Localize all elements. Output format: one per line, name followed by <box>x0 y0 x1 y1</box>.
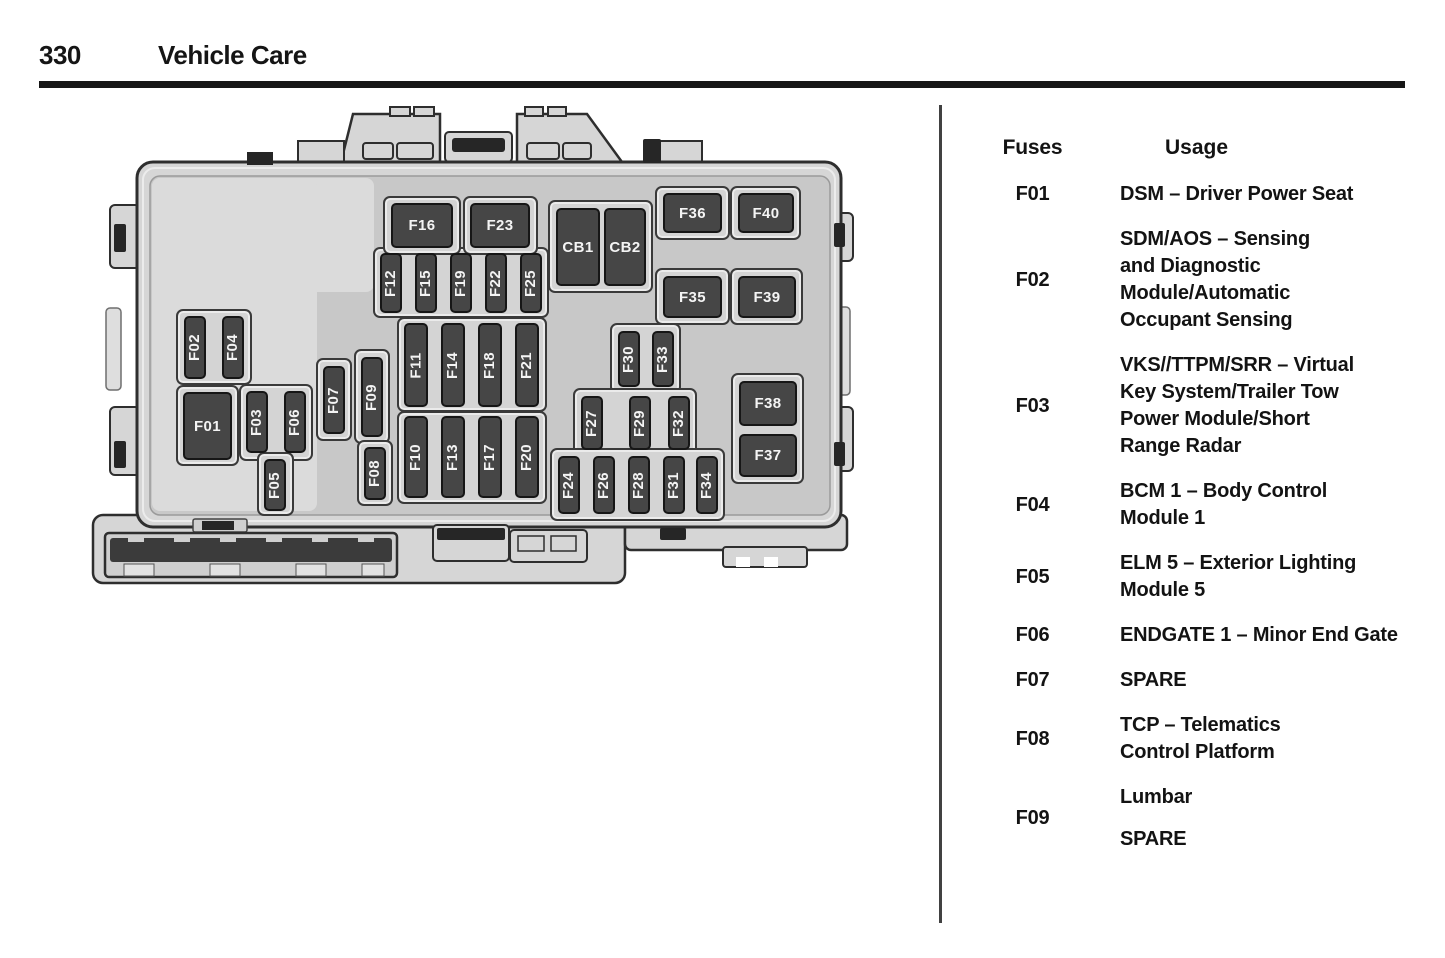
fuse-F26: F26 <box>593 456 615 514</box>
fuse-F32: F32 <box>668 396 690 450</box>
fuse-F35: F35 <box>663 276 722 318</box>
column-divider <box>939 105 942 923</box>
fuse-label: F34 <box>699 471 716 498</box>
usage-line <box>1120 811 1437 826</box>
fuse-F12: F12 <box>380 253 402 313</box>
usage-line: Power Module/Short <box>1120 406 1437 433</box>
fuse-label: F36 <box>679 205 706 222</box>
fuse-id: F07 <box>945 667 1120 694</box>
fuse-label: F09 <box>364 383 381 410</box>
fuse-F27: F27 <box>581 396 603 450</box>
fuse-F33: F33 <box>652 331 674 387</box>
fuse-label: F35 <box>679 289 706 306</box>
fuse-id: F04 <box>945 478 1120 532</box>
fuse-F24: F24 <box>558 456 580 514</box>
fuse-F36: F36 <box>663 193 722 233</box>
table-row: F06ENDGATE 1 – Minor End Gate <box>945 622 1437 649</box>
usage-line: and Diagnostic <box>1120 253 1437 280</box>
usage-line: Key System/Trailer Tow <box>1120 379 1437 406</box>
page-section-title: Vehicle Care <box>158 40 307 71</box>
fuse-F01: F01 <box>183 392 232 460</box>
fuse-F17: F17 <box>478 416 502 498</box>
fuse-F03: F03 <box>246 391 268 453</box>
usage-line: ENDGATE 1 – Minor End Gate <box>1120 622 1437 649</box>
fuse-label: F27 <box>584 409 601 436</box>
table-row: F05ELM 5 – Exterior LightingModule 5 <box>945 550 1437 604</box>
usage-line: Lumbar <box>1120 784 1437 811</box>
fuse-F29: F29 <box>629 396 651 450</box>
usage-line: DSM – Driver Power Seat <box>1120 181 1437 208</box>
fuse-F34: F34 <box>696 456 718 514</box>
fuse-F07: F07 <box>323 366 345 434</box>
fuse-label: F20 <box>519 443 536 470</box>
fuse-F28: F28 <box>628 456 650 514</box>
usage-line: VKS//TTPM/SRR – Virtual <box>1120 352 1437 379</box>
fuse-F02: F02 <box>184 316 206 379</box>
fuse-label: F02 <box>187 334 204 361</box>
fuse-usage: SDM/AOS – Sensingand DiagnosticModule/Au… <box>1120 226 1437 334</box>
fuse-F38: F38 <box>739 381 797 426</box>
fuse-id: F09 <box>945 784 1120 853</box>
usage-line: Module 1 <box>1120 505 1437 532</box>
fuse-usage-table: Fuses Usage F01DSM – Driver Power SeatF0… <box>945 136 1437 871</box>
fuse-label: F08 <box>367 460 384 487</box>
fuse-label: F10 <box>408 443 425 470</box>
fuse-F06: F06 <box>284 391 306 453</box>
fuse-usage: SPARE <box>1120 667 1437 694</box>
fuse-label: F04 <box>225 334 242 361</box>
fuse-label: F38 <box>754 395 781 412</box>
table-row: F07SPARE <box>945 667 1437 694</box>
table-row: F09LumbarSPARE <box>945 784 1437 853</box>
fuse-label: F13 <box>445 443 462 470</box>
fuse-label: F12 <box>383 269 400 296</box>
fuse-F09: F09 <box>361 357 383 437</box>
fuse-label: F26 <box>596 471 613 498</box>
fuse-label: F01 <box>194 418 221 435</box>
fuse-F23: F23 <box>470 203 530 248</box>
fuse-label: F19 <box>453 269 470 296</box>
usage-line: Module/Automatic <box>1120 280 1437 307</box>
fuse-usage: BCM 1 – Body ControlModule 1 <box>1120 478 1437 532</box>
usage-line: Range Radar <box>1120 433 1437 460</box>
table-row: F01DSM – Driver Power Seat <box>945 181 1437 208</box>
fuse-F40: F40 <box>738 193 794 233</box>
fuse-F22: F22 <box>485 253 507 313</box>
fuse-label: F29 <box>632 409 649 436</box>
fuse-label: F39 <box>753 289 780 306</box>
fuse-label: F37 <box>754 447 781 464</box>
fuse-label: F17 <box>482 443 499 470</box>
fuse-table-rows: F01DSM – Driver Power SeatF02SDM/AOS – S… <box>945 181 1437 853</box>
fuse-label: F24 <box>561 471 578 498</box>
fuse-label: F05 <box>267 471 284 498</box>
fuse-usage: ELM 5 – Exterior LightingModule 5 <box>1120 550 1437 604</box>
fuse-F37: F37 <box>739 434 797 477</box>
fuse-usage: ENDGATE 1 – Minor End Gate <box>1120 622 1437 649</box>
table-header-usage: Usage <box>1120 136 1437 160</box>
usage-line: BCM 1 – Body Control <box>1120 478 1437 505</box>
fuse-label: F14 <box>445 351 462 378</box>
fuse-label: F31 <box>666 471 683 498</box>
usage-line: ELM 5 – Exterior Lighting <box>1120 550 1437 577</box>
usage-line: Control Platform <box>1120 739 1437 766</box>
fuse-F10: F10 <box>404 416 428 498</box>
fuse-label: F30 <box>621 345 638 372</box>
usage-line: TCP – Telematics <box>1120 712 1437 739</box>
fuse-label: F15 <box>418 269 435 296</box>
fuse-id: F08 <box>945 712 1120 766</box>
usage-line: SPARE <box>1120 667 1437 694</box>
fuse-usage: DSM – Driver Power Seat <box>1120 181 1437 208</box>
fuse-F08: F08 <box>364 447 386 500</box>
fuse-usage: LumbarSPARE <box>1120 784 1437 853</box>
fuse-id: F05 <box>945 550 1120 604</box>
table-row: F04BCM 1 – Body ControlModule 1 <box>945 478 1437 532</box>
fuse-F15: F15 <box>415 253 437 313</box>
fuse-label: CB1 <box>562 239 593 256</box>
fuse-label: F25 <box>523 269 540 296</box>
fuse-F20: F20 <box>515 416 539 498</box>
fuse-label: F40 <box>752 205 779 222</box>
fuse-label: F06 <box>287 408 304 435</box>
fuse-box-diagram: F01F02F04F03F06F05F07F09F08F12F15F19F22F… <box>90 105 880 595</box>
fuse-F11: F11 <box>404 323 428 407</box>
fuse-label: F07 <box>326 386 343 413</box>
fuse-label: F11 <box>408 352 425 378</box>
table-row: F03VKS//TTPM/SRR – VirtualKey System/Tra… <box>945 352 1437 460</box>
fuse-usage: VKS//TTPM/SRR – VirtualKey System/Traile… <box>1120 352 1437 460</box>
fuse-label: F22 <box>488 269 505 296</box>
fuse-F05: F05 <box>264 459 286 511</box>
fuse-F21: F21 <box>515 323 539 407</box>
fuse-id: F06 <box>945 622 1120 649</box>
fuse-F25: F25 <box>520 253 542 313</box>
fuse-id: F01 <box>945 181 1120 208</box>
fuse-F14: F14 <box>441 323 465 407</box>
fuse-CB2: CB2 <box>604 208 646 286</box>
fuse-label: F21 <box>519 351 536 378</box>
fuse-label: F18 <box>482 351 499 378</box>
fuse-CB1: CB1 <box>556 208 600 286</box>
fuse-label: F23 <box>486 217 513 234</box>
table-row: F08TCP – TelematicsControl Platform <box>945 712 1437 766</box>
fuse-label: CB2 <box>609 239 640 256</box>
usage-line: Occupant Sensing <box>1120 307 1437 334</box>
fuse-F13: F13 <box>441 416 465 498</box>
table-row: F02SDM/AOS – Sensingand DiagnosticModule… <box>945 226 1437 334</box>
header-rule <box>39 81 1405 88</box>
fuse-label: F33 <box>655 345 672 372</box>
fuse-F18: F18 <box>478 323 502 407</box>
fuse-layer: F01F02F04F03F06F05F07F09F08F12F15F19F22F… <box>90 105 880 595</box>
fuse-F16: F16 <box>391 203 453 248</box>
fuse-F31: F31 <box>663 456 685 514</box>
fuse-label: F32 <box>671 409 688 436</box>
fuse-F04: F04 <box>222 316 244 379</box>
fuse-label: F28 <box>631 471 648 498</box>
fuse-usage: TCP – TelematicsControl Platform <box>1120 712 1437 766</box>
fuse-label: F03 <box>249 408 266 435</box>
fuse-F19: F19 <box>450 253 472 313</box>
fuse-id: F03 <box>945 352 1120 460</box>
fuse-id: F02 <box>945 226 1120 334</box>
table-header-fuses: Fuses <box>945 136 1120 160</box>
page-number: 330 <box>39 40 81 71</box>
usage-line: Module 5 <box>1120 577 1437 604</box>
usage-line: SDM/AOS – Sensing <box>1120 226 1437 253</box>
usage-line: SPARE <box>1120 826 1437 853</box>
fuse-F30: F30 <box>618 331 640 387</box>
fuse-F39: F39 <box>738 276 796 318</box>
table-header-row: Fuses Usage <box>945 136 1437 160</box>
fuse-label: F16 <box>408 217 435 234</box>
